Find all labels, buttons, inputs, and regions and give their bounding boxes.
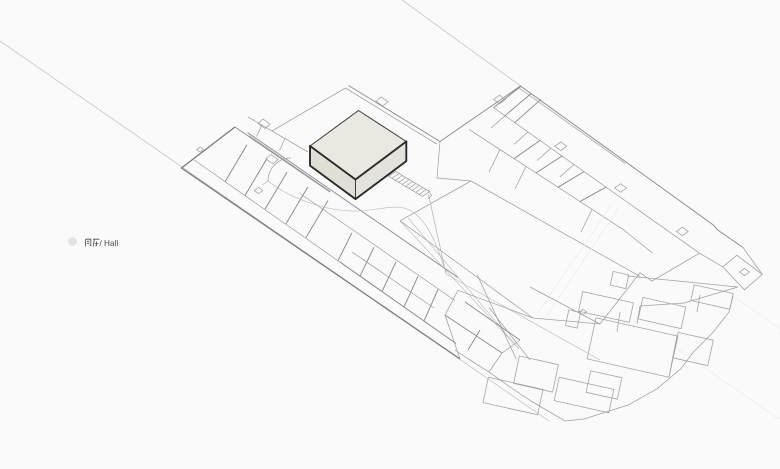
- svg-text:/ Hall: / Hall: [100, 239, 119, 248]
